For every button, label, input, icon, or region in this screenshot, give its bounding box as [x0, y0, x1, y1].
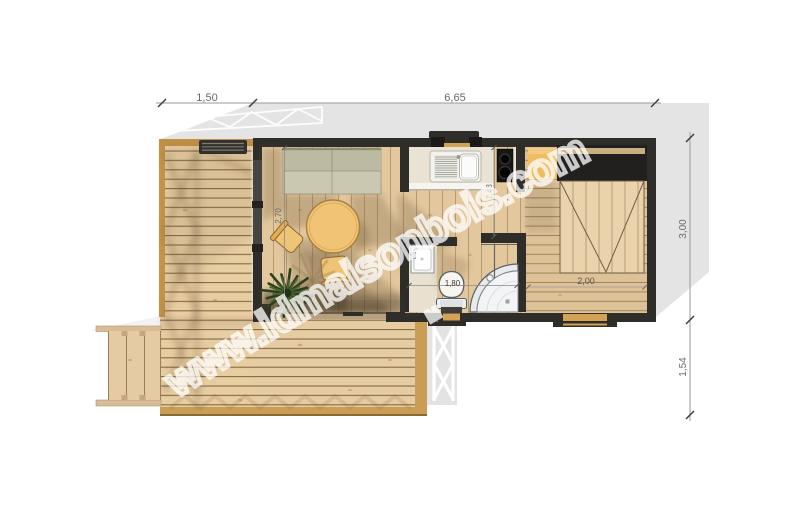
svg-text:6,65: 6,65 [444, 92, 465, 104]
svg-text:1,80: 1,80 [445, 279, 461, 288]
svg-text:2,00: 2,00 [577, 276, 595, 286]
svg-text:3,00: 3,00 [678, 219, 689, 239]
svg-text:2,70: 2,70 [274, 208, 283, 224]
svg-text:1,54: 1,54 [678, 357, 689, 377]
svg-text:1,50: 1,50 [196, 92, 217, 104]
